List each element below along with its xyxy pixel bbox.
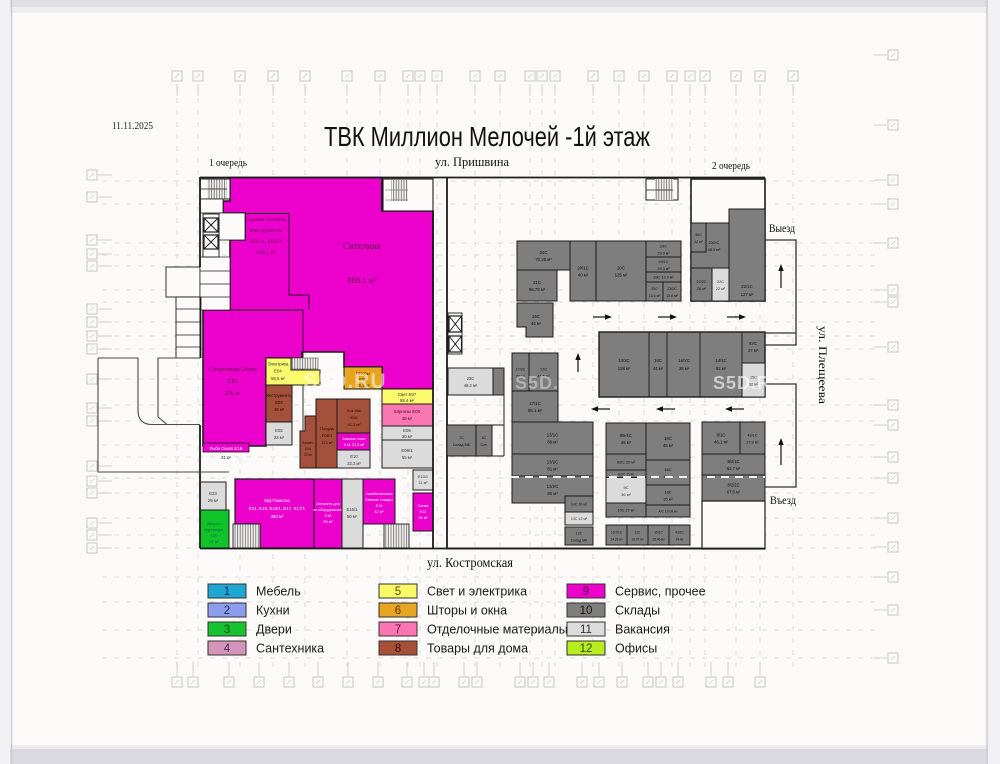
svg-text:92 м²: 92 м² [716, 366, 727, 371]
svg-text:Карнизы Е08: Карнизы Е08 [394, 409, 421, 414]
svg-text:22 м²: 22 м² [716, 287, 726, 291]
svg-text:29.3 м²: 29.3 м² [657, 252, 670, 256]
svg-text:Банные печи: Банные печи [343, 437, 366, 441]
svg-text:13/1С: 13/1С [547, 433, 558, 438]
svg-text:Е03: Е03 [275, 400, 283, 405]
svg-text:Хозяйственные: Хозяйственные [365, 492, 392, 496]
svg-text:16С: 16С [664, 436, 672, 441]
svg-text:Сантехника: Сантехника [256, 642, 324, 656]
svg-text:МД-Помогка: МД-Помогка [264, 498, 290, 503]
svg-text:294,1 м²: 294,1 м² [256, 250, 276, 256]
svg-text:Вакансия: Вакансия [615, 623, 670, 637]
svg-text:17/1С: 17/1С [529, 401, 540, 406]
svg-text:Склады: Склады [615, 604, 660, 618]
svg-text:11.11.2025: 11.11.2025 [112, 121, 153, 132]
svg-text:ул. Плещеева: ул. Плещеева [816, 326, 830, 405]
svg-text:23/УС: 23/УС [709, 240, 720, 245]
svg-text:8Б/1С: 8Б/1С [620, 433, 632, 438]
svg-text:86 м²: 86 м² [547, 491, 558, 496]
svg-text:20С: 20С [617, 266, 625, 271]
svg-text:Отделочные материалы: Отделочные материалы [427, 623, 568, 637]
svg-text:22.3 м²: 22.3 м² [347, 461, 361, 466]
svg-text:35 м²: 35 м² [663, 498, 673, 502]
svg-text:46 м²: 46 м² [621, 440, 632, 445]
svg-text:Кухни: Кухни [256, 604, 290, 618]
svg-text:8/2С 22 м²: 8/2С 22 м² [617, 461, 636, 465]
svg-text:7С: 7С [459, 436, 464, 440]
svg-text:86 м²: 86 м² [547, 440, 558, 445]
svg-text:Рыба Giants Е1Б: Рыба Giants Е1Б [210, 446, 243, 451]
svg-text:8: 8 [395, 643, 401, 655]
svg-text:Электрика: Электрика [268, 362, 290, 367]
svg-text:4: 4 [224, 643, 231, 655]
svg-text:48 м²: 48 м² [402, 416, 413, 421]
svg-text:ЕВ1: ЕВ1 [228, 379, 239, 385]
svg-text:Сервис, прочее: Сервис, прочее [615, 585, 706, 599]
svg-text:276 м²: 276 м² [225, 391, 241, 397]
svg-text:17С: 17С [540, 368, 547, 372]
svg-text:Е09/1: Е09/1 [401, 448, 413, 453]
svg-text:0.11 22.5 м²: 0.11 22.5 м² [344, 443, 365, 447]
svg-text:Е21, Е19, Е18/1, Е17, Е17/1: Е21, Е19, Е18/1, Е17, Е17/1 [249, 506, 306, 511]
svg-text:390 м²: 390 м² [270, 514, 284, 519]
svg-text:8/2/1С: 8/2/1С [727, 459, 739, 464]
svg-text:5: 5 [395, 586, 401, 598]
svg-text:S5D.: S5D. [515, 373, 559, 393]
svg-text:14С 10 м²: 14С 10 м² [571, 503, 588, 507]
svg-text:9: 9 [583, 586, 589, 598]
svg-text:10: 10 [580, 605, 593, 617]
svg-text:15/1С: 15/1С [654, 531, 663, 535]
svg-text:127 м²: 127 м² [741, 292, 754, 297]
svg-text:14С: 14С [654, 358, 662, 363]
svg-text:7: 7 [395, 624, 401, 636]
svg-text:38 м²: 38 м² [679, 366, 690, 371]
svg-text:72.25 м²: 72.25 м² [535, 257, 552, 262]
svg-text:13/УС: 13/УС [547, 484, 559, 489]
svg-text:13/1/1С: 13/1/1С [611, 531, 623, 535]
svg-text:Свет Е07: Свет Е07 [398, 392, 417, 397]
svg-text:20/1С: 20/1С [577, 266, 588, 271]
svg-text:Садовая Техника,: Садовая Техника, [245, 217, 287, 223]
svg-text:67.5 м²: 67.5 м² [727, 490, 741, 495]
svg-text:2: 2 [224, 605, 230, 617]
svg-text:1БС: 1БС [664, 468, 672, 472]
svg-text:Е18: Е18 [325, 514, 332, 518]
svg-text:41.3 м²: 41.3 м² [348, 422, 362, 427]
svg-text:11: 11 [580, 624, 592, 636]
svg-text:26С: 26С [532, 314, 540, 319]
svg-text:Выезд: Выезд [769, 223, 795, 235]
svg-text:46 м²: 46 м² [531, 321, 542, 326]
svg-text:44 м²: 44 м² [653, 366, 664, 371]
svg-text:Е12: Е12 [420, 510, 427, 514]
svg-text:11 м²: 11 м² [418, 480, 428, 485]
svg-text:13/2С: 13/2С [547, 460, 558, 465]
svg-text:Е06: Е06 [350, 415, 358, 420]
svg-text:8.06: 8.06 [305, 447, 311, 451]
svg-text:22/2С: 22/2С [696, 280, 706, 284]
svg-text:36С: 36С [695, 233, 702, 237]
svg-text:39 м²: 39 м² [418, 516, 428, 520]
svg-text:Мебель: Мебель [256, 585, 301, 599]
svg-text:Скл.: Скл. [481, 443, 488, 447]
svg-text:58.4 м²: 58.4 м² [400, 398, 415, 403]
svg-text:14/2С: 14/2С [618, 358, 629, 363]
svg-text:13.6 м²: 13.6 м² [666, 294, 678, 298]
svg-text:12С: 12С [576, 532, 583, 536]
svg-text:Двери и: Двери и [207, 522, 221, 526]
svg-text:6: 6 [395, 605, 401, 617]
svg-text:Космет.: Космет. [302, 441, 313, 445]
svg-text:45 м²: 45 м² [663, 443, 674, 448]
svg-text:125 м²: 125 м² [615, 273, 628, 278]
svg-text:S5D.R: S5D.R [713, 373, 771, 393]
svg-text:6С: 6С [482, 436, 487, 440]
svg-text:Посуда: Посуда [320, 426, 334, 431]
svg-text:Е23: Е23 [209, 491, 217, 496]
svg-text:29 м²: 29 м² [208, 498, 219, 503]
svg-text:46.1 м²: 46.1 м² [714, 440, 729, 445]
svg-text:ТВК Миллион Мелочей -1й этаж: ТВК Миллион Мелочей -1й этаж [324, 121, 650, 152]
svg-text:Запчасти для: Запчасти для [316, 502, 340, 506]
svg-text:28С 13.4 м²: 28С 13.4 м² [653, 276, 674, 280]
svg-text:96.1 м²: 96.1 м² [528, 408, 543, 413]
svg-text:31 м²: 31 м² [221, 455, 232, 460]
svg-text:8/2/2С: 8/2/2С [727, 483, 739, 488]
svg-text:6УС: 6УС [749, 341, 757, 346]
svg-text:Офисы: Офисы [615, 642, 657, 656]
svg-text:ул. Костромская: ул. Костромская [427, 556, 513, 571]
svg-text:9С: 9С [623, 485, 628, 490]
svg-text:ЕВ1/2, ЕВ1/3: ЕВ1/2, ЕВ1/3 [250, 239, 282, 245]
svg-text:ул. Пришвина: ул. Пришвина [435, 154, 509, 169]
svg-text:Е09: Е09 [403, 428, 411, 433]
svg-text:14/1С: 14/1С [715, 358, 726, 363]
svg-text:59 м²: 59 м² [323, 520, 333, 524]
svg-text:48.9 м²: 48.9 м² [708, 247, 721, 252]
svg-text:Товары для дома: Товары для дома [427, 642, 528, 656]
svg-text:Склад МБ: Склад МБ [453, 443, 471, 447]
svg-text:24С: 24С [540, 250, 548, 255]
svg-text:Двери: Двери [256, 623, 292, 637]
svg-text:10С 27 м²: 10С 27 м² [617, 509, 635, 513]
svg-text:48.2 м²: 48.2 м² [464, 383, 478, 388]
svg-text:888.1 м²: 888.1 м² [347, 275, 377, 285]
svg-text:27.9 м²: 27.9 м² [746, 441, 759, 445]
svg-text:1: 1 [224, 586, 230, 598]
svg-text:58,5 м²: 58,5 м² [271, 376, 286, 381]
svg-text:36 м²: 36 м² [621, 492, 631, 497]
svg-text:Е15/1: Е15/1 [347, 507, 359, 512]
svg-text:55 м²: 55 м² [402, 455, 413, 460]
svg-text:50 м²: 50 м² [347, 514, 358, 519]
svg-text:Е13: Е13 [376, 504, 383, 508]
svg-text:Шторы и окна: Шторы и окна [427, 604, 507, 618]
svg-text:3: 3 [224, 624, 230, 636]
svg-text:А/С 10.09 м²: А/С 10.09 м² [659, 510, 679, 514]
svg-text:24 м²: 24 м² [676, 538, 684, 542]
svg-text:23 м²: 23 м² [274, 435, 285, 440]
svg-text:Ситилинк: Ситилинк [343, 241, 382, 251]
svg-text:Въезд: Въезд [770, 495, 796, 507]
svg-text:Банные товары: Банные товары [365, 498, 393, 502]
svg-text:42 м²: 42 м² [374, 510, 384, 514]
svg-text:фурнитура: фурнитура [204, 528, 224, 532]
svg-text:17/2С: 17/2С [516, 368, 526, 372]
svg-text:18С: 18С [665, 491, 672, 495]
svg-text:22/1С: 22/1С [741, 284, 752, 289]
svg-text:23/2С: 23/2С [667, 287, 677, 291]
svg-text:37 м²: 37 м² [209, 540, 219, 544]
svg-text:30 м²: 30 м² [304, 453, 312, 457]
svg-text:А/2С 15 м²: А/2С 15 м² [618, 472, 635, 476]
svg-text:8/1С: 8/1С [716, 433, 725, 438]
svg-text:16/УС: 16/УС [678, 358, 690, 363]
svg-text:Спортивная Обувь: Спортивная Обувь [209, 366, 257, 373]
svg-text:10.97 м²: 10.97 м² [631, 538, 643, 542]
svg-text:Е04: Е04 [274, 369, 282, 374]
svg-text:26 м²: 26 м² [697, 287, 707, 291]
svg-text:14.26 м²: 14.26 м² [610, 538, 622, 542]
svg-text:11С: 11С [635, 531, 641, 535]
svg-text:25.46 м²: 25.46 м² [652, 538, 664, 542]
svg-text:30 м²: 30 м² [402, 434, 413, 439]
svg-text:98.78 м²: 98.78 м² [529, 287, 546, 292]
svg-text:эл.оборудования: эл.оборудования [313, 508, 343, 512]
svg-text:29.3 м²: 29.3 м² [657, 267, 670, 271]
svg-text:Свет и электрика: Свет и электрика [427, 585, 527, 599]
svg-text:13.4 м²: 13.4 м² [649, 294, 661, 298]
svg-text:158 м²: 158 м² [618, 366, 631, 371]
svg-text:Инструменты: Инструменты [266, 393, 292, 398]
svg-text:81 м²: 81 м² [547, 467, 558, 472]
svg-text:1 очередь: 1 очередь [209, 157, 247, 169]
svg-text:22С: 22С [717, 280, 724, 284]
svg-text:Санки: Санки [418, 504, 429, 508]
svg-text:45 м²: 45 м² [274, 407, 285, 412]
svg-text:2 очередь: 2 очередь [712, 160, 750, 172]
svg-text:113 м²: 113 м² [321, 440, 333, 445]
svg-text:Е20: Е20 [211, 534, 218, 538]
svg-text:43/2С: 43/2С [675, 531, 684, 535]
svg-text:Инструменты: Инструменты [250, 228, 283, 234]
svg-text:12: 12 [580, 643, 593, 655]
svg-text:Хоз.Маг: Хоз.Маг [347, 408, 362, 413]
svg-text:Е10: Е10 [350, 454, 358, 459]
svg-text:27 м²: 27 м² [748, 348, 759, 353]
svg-text:13С 12 м²: 13С 12 м² [571, 517, 588, 521]
svg-text:25С: 25С [651, 287, 658, 291]
svg-text:29/1С: 29/1С [658, 260, 668, 264]
svg-text:40 м²: 40 м² [578, 273, 589, 278]
svg-text:43/1С: 43/1С [747, 434, 757, 438]
svg-text:23С: 23С [467, 376, 475, 381]
svg-text:21С: 21С [533, 280, 541, 285]
svg-text:12 м²: 12 м² [694, 240, 703, 244]
svg-text:Е02: Е02 [275, 428, 283, 433]
svg-text:Е06/1: Е06/1 [322, 433, 333, 438]
svg-text:S5D.RU: S5D.RU [303, 370, 386, 393]
svg-text:29С: 29С [660, 245, 667, 249]
svg-text:52.7 м²: 52.7 м² [727, 466, 741, 471]
svg-text:Склад МК: Склад МК [571, 539, 588, 543]
svg-text:Е13/1: Е13/1 [418, 474, 428, 479]
